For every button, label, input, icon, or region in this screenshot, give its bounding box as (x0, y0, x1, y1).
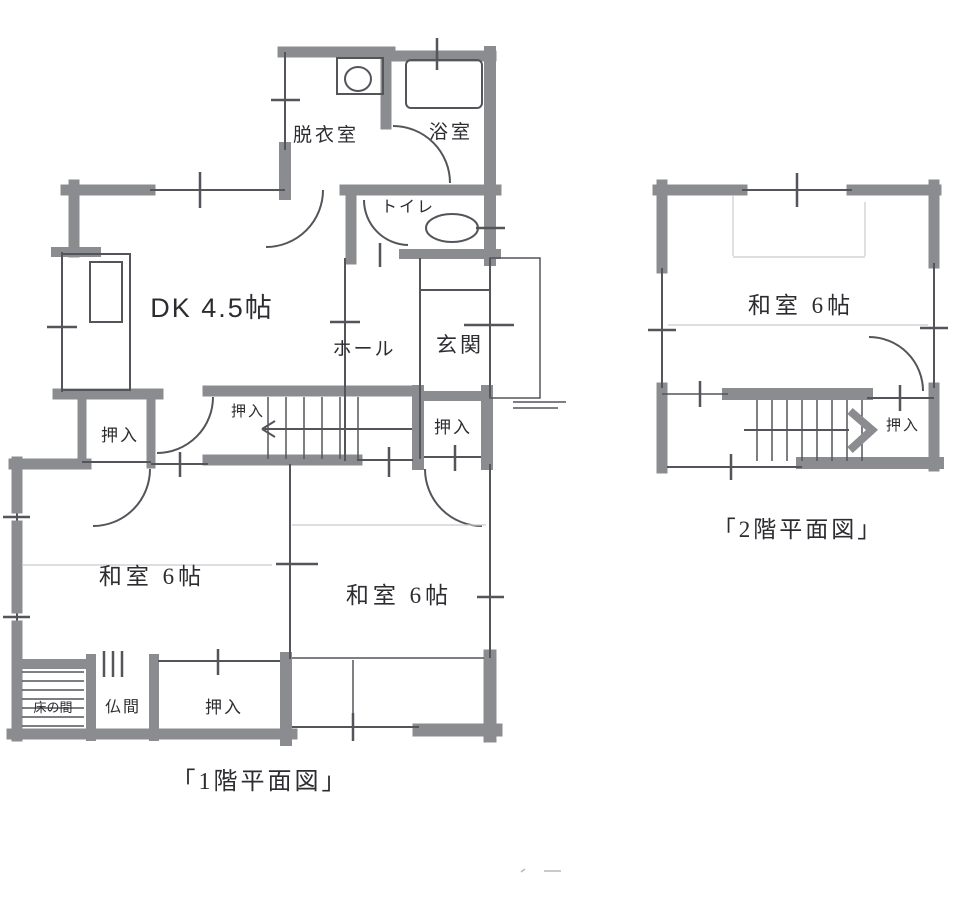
first-floor-tatami-lines (22, 525, 486, 565)
label-closet-2f: 押入 (886, 417, 920, 434)
floorplan-scan: 脱衣室 浴室 トイレ DK 4.5帖 ホール 玄関 押入 押入 押入 和室 6帖… (0, 0, 958, 922)
toilet-fixture (426, 214, 478, 242)
second-floor-caption: 「2階平面図」 (713, 517, 884, 542)
second-floor-door-arc (869, 337, 923, 391)
label-washitsu-southwest: 和室 6帖 (99, 564, 205, 589)
label-bath-room: 浴室 (429, 121, 473, 143)
label-closet-dk: 押入 (101, 426, 139, 445)
entrance-porch (490, 258, 566, 408)
first-floor-caption: 「1階平面図」 (172, 768, 349, 795)
washbasin-counter (337, 58, 383, 94)
label-dining-kitchen: DK 4.5帖 (150, 293, 274, 323)
bathtub-fixture (406, 60, 482, 108)
washbasin-bowl (345, 67, 371, 91)
label-entrance: 玄関 (436, 333, 484, 357)
label-closet-hall: 押入 (434, 418, 472, 437)
first-floor-plan: 脱衣室 浴室 トイレ DK 4.5帖 ホール 玄関 押入 押入 押入 和室 6帖… (3, 38, 566, 795)
label-closet-stairs: 押入 (231, 403, 265, 420)
staircase-second-floor (744, 400, 872, 461)
label-toilet: トイレ (381, 199, 435, 216)
stairs-direction-arrow (850, 411, 872, 450)
scan-artifacts (521, 869, 561, 872)
label-dressing-room: 脱衣室 (293, 124, 359, 146)
label-washitsu-2f: 和室 6帖 (748, 293, 854, 318)
kitchen-sink (90, 262, 122, 322)
label-tokonoma: 床の間 (33, 700, 72, 715)
second-floor-plan: 和室 6帖 押入 「2階平面図」 (648, 173, 948, 542)
label-butsuma: 仏間 (105, 699, 141, 716)
floorplan-drawing: 脱衣室 浴室 トイレ DK 4.5帖 ホール 玄関 押入 押入 押入 和室 6帖… (0, 0, 958, 922)
label-washitsu-southeast: 和室 6帖 (346, 583, 452, 608)
label-hall: ホール (332, 339, 395, 360)
tokonoma-hatching (22, 672, 84, 726)
second-floor-room-labels: 和室 6帖 押入 (748, 293, 920, 434)
first-floor-thick-walls (12, 52, 496, 740)
label-closet-south: 押入 (205, 698, 243, 717)
